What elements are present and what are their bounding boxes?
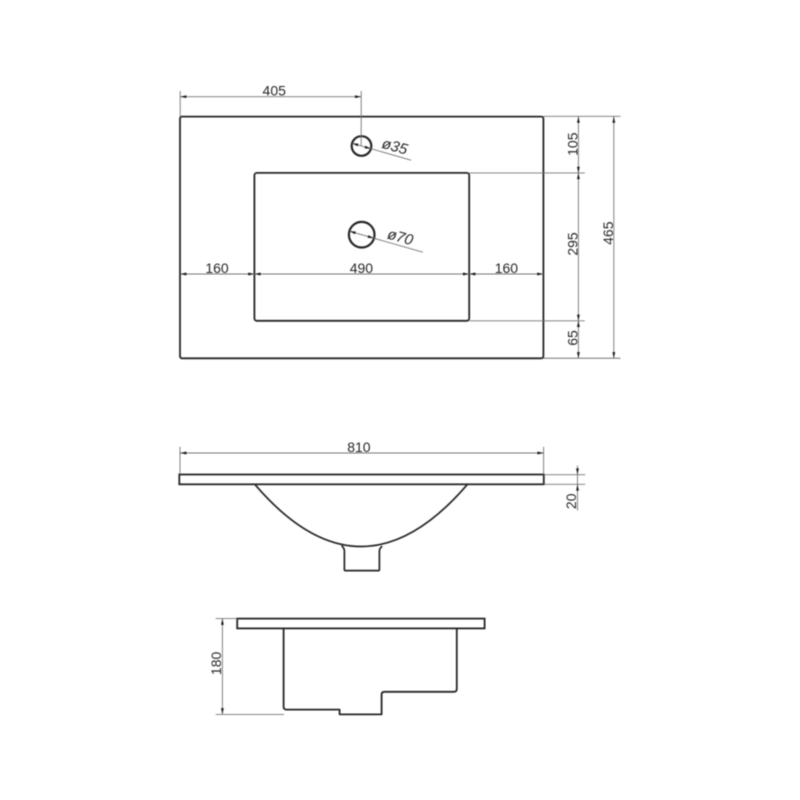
svg-text:ø35: ø35 bbox=[380, 135, 410, 159]
svg-text:405: 405 bbox=[263, 83, 287, 99]
svg-text:160: 160 bbox=[495, 260, 519, 276]
svg-text:160: 160 bbox=[205, 260, 229, 276]
svg-text:490: 490 bbox=[350, 260, 374, 276]
svg-text:180: 180 bbox=[208, 652, 224, 676]
svg-text:105: 105 bbox=[564, 132, 580, 156]
svg-text:465: 465 bbox=[600, 221, 616, 245]
svg-text:810: 810 bbox=[347, 439, 371, 455]
svg-text:ø70: ø70 bbox=[385, 226, 415, 250]
svg-text:295: 295 bbox=[564, 232, 580, 256]
svg-text:65: 65 bbox=[564, 330, 580, 346]
svg-text:20: 20 bbox=[563, 493, 579, 509]
